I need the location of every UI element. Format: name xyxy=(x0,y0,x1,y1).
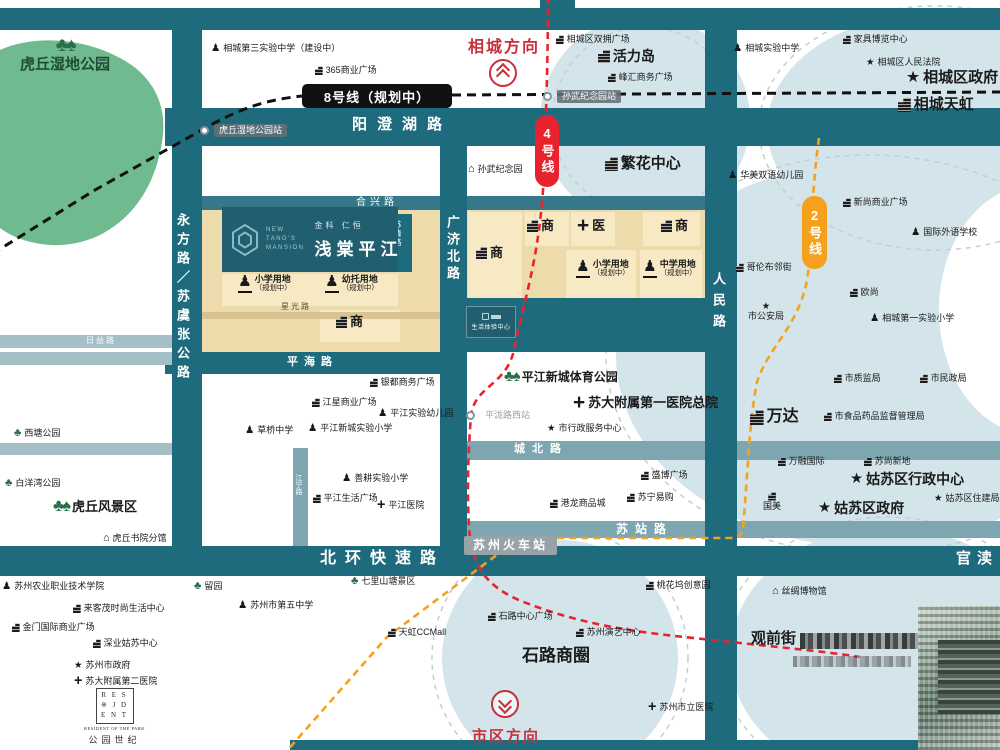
map-poi: 丝绸博物馆 xyxy=(772,586,827,597)
location-map: 阳澄湖路 合兴路 星光路 日益路 平海路 城北路 苏站路 北环快速路 官渎 永方… xyxy=(0,0,1000,750)
project-en-line: MANSION xyxy=(266,244,305,253)
trees-icon xyxy=(53,498,69,515)
poi-label: 商 xyxy=(490,246,503,260)
poi-label: 国美 xyxy=(763,502,781,511)
tree-icon xyxy=(194,581,201,592)
map-poi: 苏大附属第一医院总院 xyxy=(573,396,718,410)
poi-label: 苏州农业职业技术学院 xyxy=(14,582,104,591)
poi-label: 港龙商品城 xyxy=(561,499,606,508)
map-poi: 哥伦布邻街 xyxy=(736,263,792,272)
map-poi: 平江医院 xyxy=(377,501,424,510)
school-icon xyxy=(238,601,247,611)
poi-label: 姑苏区住建局 xyxy=(945,494,999,503)
map-poi: 相城天虹 xyxy=(898,97,974,113)
map-poi: 相城区人民法院 xyxy=(866,58,940,67)
building-icon xyxy=(824,412,832,421)
poi-label: 新尚商业广场 xyxy=(854,198,908,207)
building-icon xyxy=(768,492,776,501)
map-poi: 市质监局 xyxy=(834,374,881,383)
poi-label: 万达 xyxy=(767,409,799,426)
star-icon xyxy=(818,501,831,516)
poi-label: 草桥中学 xyxy=(257,426,293,435)
map-poi: 平江实验幼儿园 xyxy=(378,409,453,419)
museum-icon xyxy=(468,164,475,175)
star-icon xyxy=(906,70,920,86)
project-brands: 金科 仁恒 xyxy=(315,220,403,231)
map-poi: 苏州市政府 xyxy=(74,661,130,670)
poi-label: 相城第三实验中学（建设中） xyxy=(223,44,340,53)
poi-label: 苏州市政府 xyxy=(85,661,130,670)
cross-icon xyxy=(377,501,385,510)
poi-label: 相城天虹 xyxy=(914,97,974,113)
poi-label: 苏州演艺中心 xyxy=(587,628,641,637)
map-poi: 幼托用地（规划中） xyxy=(325,274,379,293)
tree-icon xyxy=(14,428,21,439)
poi-sublabel: （规划中） xyxy=(255,284,292,292)
map-poi: 国美 xyxy=(763,492,781,511)
poi-label: 相城第一实验小学 xyxy=(882,314,954,323)
map-poi: 孙武纪念园 xyxy=(468,164,523,175)
poi-label: 虎丘风景区 xyxy=(72,500,137,514)
map-poi: 苏州市立医院 xyxy=(648,703,713,712)
map-poi: 草桥中学 xyxy=(245,426,293,436)
person-icon xyxy=(643,259,657,277)
museum-icon xyxy=(103,533,110,544)
poi-label: 市食品药品监督管理局 xyxy=(835,412,925,421)
map-poi: 桃花坞创意园 xyxy=(646,581,711,590)
map-poi: 小学用地（规划中） xyxy=(576,259,630,278)
poi-label: 盛博广场 xyxy=(652,471,688,480)
cross-icon xyxy=(74,677,82,686)
building-icon xyxy=(834,374,842,383)
school-icon xyxy=(733,44,742,54)
star-icon xyxy=(74,661,82,670)
school-icon xyxy=(728,171,737,181)
map-poi: 市民政局 xyxy=(920,374,967,383)
poi-label: 欧尚 xyxy=(861,288,879,297)
poi-label: 孙武纪念园 xyxy=(478,165,523,174)
map-poi: 国际外语学校 xyxy=(911,228,977,238)
map-poi: 欧尚 xyxy=(850,288,879,297)
map-poi: 商 xyxy=(661,219,688,233)
poi-label: 苏宁易购 xyxy=(638,493,674,502)
resident-park-logo: R E S ※ J D E N T RESIDENT OF THE PARK 公… xyxy=(84,688,145,746)
poi-label: 哥伦布邻街 xyxy=(747,263,792,272)
project-en-line: TANG'S xyxy=(266,235,305,244)
map-poi: 中学用地（规划中） xyxy=(643,259,697,278)
map-poi: 平江新城实验小学 xyxy=(308,424,392,434)
poi-label: 商 xyxy=(675,219,688,233)
map-poi: 市行政服务中心 xyxy=(547,424,621,433)
map-poi: 商 xyxy=(476,246,503,260)
map-poi: 七里山塘景区 xyxy=(351,576,415,587)
building-icon xyxy=(661,220,672,232)
building-icon xyxy=(313,494,321,503)
map-poi: 医 xyxy=(577,219,605,233)
map-poi: 市公安局 xyxy=(748,302,784,322)
metro-line4-path xyxy=(468,0,860,657)
map-poi: 峰汇商务广场 xyxy=(608,73,673,82)
poi-label: 善耕实验小学 xyxy=(354,474,408,483)
metro-line8-badge: 8号线（规划中） xyxy=(302,84,452,108)
project-card: NEW TANG'S MANSION 金科 仁恒 浅棠平江 xyxy=(222,207,398,272)
poi-label: 苏州市立医院 xyxy=(659,703,713,712)
poi-label: 市公安局 xyxy=(748,312,784,321)
map-poi: 苏尚新地 xyxy=(864,457,911,466)
poi-label: 家具博览中心 xyxy=(854,35,908,44)
map-poi: 华美双语幼儿园 xyxy=(728,171,803,181)
poi-label: 市民政局 xyxy=(931,374,967,383)
building-icon xyxy=(605,157,618,171)
building-icon xyxy=(527,220,538,232)
poi-label: 万融国际 xyxy=(789,457,825,466)
map-poi: 盛博广场 xyxy=(641,471,688,480)
poi-label: 江星商业广场 xyxy=(323,398,377,407)
building-icon xyxy=(598,50,610,63)
poi-label: 桃花坞创意园 xyxy=(657,581,711,590)
project-en-line: NEW xyxy=(266,226,305,235)
map-poi: 石路商圈 xyxy=(522,647,590,665)
building-icon xyxy=(850,288,858,297)
museum-icon xyxy=(772,586,779,597)
building-icon xyxy=(608,73,616,82)
map-poi: 相城实验中学 xyxy=(733,44,799,54)
map-poi: 家具博览中心 xyxy=(843,35,908,44)
metro-station-dot xyxy=(543,92,552,101)
poi-label: 虎丘湿地公园 xyxy=(20,57,110,73)
poi-label: 来客茂时尚生活中心 xyxy=(84,604,165,613)
cross-icon xyxy=(573,396,585,410)
building-icon xyxy=(898,98,911,112)
poi-label: 活力岛 xyxy=(613,49,655,64)
poi-label: 医 xyxy=(592,219,605,233)
poi-sublabel: （规划中） xyxy=(593,269,630,277)
map-poi: 江星商业广场 xyxy=(312,398,377,407)
poi-label: 相城实验中学 xyxy=(745,44,799,53)
map-poi: 银都商务广场 xyxy=(370,378,435,387)
school-icon xyxy=(342,474,351,484)
building-icon xyxy=(12,623,20,632)
school-icon xyxy=(308,424,317,434)
project-name-en: NEW TANG'S MANSION xyxy=(266,226,305,253)
trees-icon xyxy=(504,369,519,385)
map-poi: 金门国际商业广场 xyxy=(12,623,95,632)
map-poi: 新尚商业广场 xyxy=(843,198,908,207)
building-icon xyxy=(315,66,323,75)
experience-center-box: 生活体验中心 xyxy=(466,306,516,338)
map-poi: 姑苏区住建局 xyxy=(934,494,999,503)
map-poi: 善耕实验小学 xyxy=(342,474,408,484)
map-poi: 虎丘湿地公园 xyxy=(20,36,110,72)
poi-label: 深业姑苏中心 xyxy=(104,639,158,648)
poi-label: 市质监局 xyxy=(845,374,881,383)
brand-mini-logos xyxy=(482,313,501,320)
building-icon xyxy=(864,457,872,466)
map-poi: 港龙商品城 xyxy=(550,499,606,508)
poi-label: 平江新城体育公园 xyxy=(522,371,618,384)
map-poi: 市食品药品监督管理局 xyxy=(824,412,925,421)
poi-label: 白洋湾公园 xyxy=(15,479,60,488)
cross-icon xyxy=(577,219,589,233)
map-poi: 苏大附属第二医院 xyxy=(74,677,157,686)
poi-label: 西塘公园 xyxy=(24,429,60,438)
direction-north-icon xyxy=(489,59,517,87)
resident-logo-subtitle: RESIDENT OF THE PARK xyxy=(84,726,145,731)
map-poi: 商 xyxy=(336,315,363,329)
map-poi: 相城区双拥广场 xyxy=(556,35,630,44)
star-icon xyxy=(934,494,942,503)
corrupted-image-artifact xyxy=(918,606,1000,750)
person-icon xyxy=(238,274,252,292)
school-icon xyxy=(245,426,254,436)
direction-south-label: 市区方向 xyxy=(472,725,540,746)
person-icon xyxy=(325,274,339,292)
map-poi: 来客茂时尚生活中心 xyxy=(73,604,165,613)
building-icon xyxy=(750,410,764,425)
poi-label: 平江生活广场 xyxy=(324,494,378,503)
metro-station-label: 平泷路西站 xyxy=(480,409,535,422)
star-icon xyxy=(850,472,863,487)
building-icon xyxy=(627,493,635,502)
corrupted-text-smudge xyxy=(793,656,911,667)
building-icon xyxy=(843,198,851,207)
school-icon xyxy=(870,314,879,324)
poi-label: 石路中心广场 xyxy=(499,612,553,621)
poi-label: 观前街 xyxy=(751,631,796,647)
direction-north-label: 相城方向 xyxy=(468,33,540,57)
map-poi: 365商业广场 xyxy=(315,66,377,75)
poi-label: 苏州市第五中学 xyxy=(250,601,313,610)
building-icon xyxy=(73,604,81,613)
poi-label: 商 xyxy=(541,219,554,233)
poi-label: 国际外语学校 xyxy=(923,228,977,237)
person-icon xyxy=(576,259,590,277)
map-poi: 白洋湾公园 xyxy=(5,478,60,489)
map-poi: 苏宁易购 xyxy=(627,493,674,502)
poi-sublabel: （规划中） xyxy=(342,284,379,292)
poi-label: 七里山塘景区 xyxy=(361,577,415,586)
map-poi: 观前街 xyxy=(751,631,796,647)
map-poi: 相城第三实验中学（建设中） xyxy=(211,44,340,54)
poi-label: 金门国际商业广场 xyxy=(23,623,95,632)
metro-station-label: 虎丘湿地公园站 xyxy=(214,124,287,137)
experience-center-label: 生活体验中心 xyxy=(471,322,510,331)
building-icon xyxy=(556,35,564,44)
resident-logo-grid: R E S ※ J D E N T xyxy=(96,688,134,724)
map-poi: 姑苏区政府 xyxy=(818,501,904,516)
metro-station-dot xyxy=(200,126,209,135)
building-icon xyxy=(312,398,320,407)
building-icon xyxy=(93,639,101,648)
poi-label: 石路商圈 xyxy=(522,647,590,665)
trees-icon xyxy=(56,36,74,56)
poi-label: 365商业广场 xyxy=(326,66,377,75)
map-poi: 天虹CCMall xyxy=(388,628,446,637)
poi-label: 繁花中心 xyxy=(621,156,681,172)
star-icon xyxy=(547,424,555,433)
poi-label: 相城区政府 xyxy=(923,70,998,86)
building-icon xyxy=(646,581,654,590)
poi-label: 华美双语幼儿园 xyxy=(740,171,803,180)
poi-label: 姑苏区行政中心 xyxy=(866,472,964,487)
poi-label: 平江新城实验小学 xyxy=(320,424,392,433)
school-icon xyxy=(911,228,920,238)
poi-sublabel: （规划中） xyxy=(660,269,697,277)
resident-logo-row: E N T xyxy=(101,711,128,721)
school-icon xyxy=(2,582,11,592)
map-poi: 相城区政府 xyxy=(906,70,998,86)
poi-label: 苏大附属第一医院总院 xyxy=(588,396,718,410)
metro-station-dot xyxy=(466,411,475,420)
project-logo-icon xyxy=(230,222,260,258)
building-icon xyxy=(388,628,396,637)
resident-logo-row: R E S xyxy=(101,691,127,701)
map-poi: 万融国际 xyxy=(778,457,825,466)
building-icon xyxy=(778,457,786,466)
map-poi: 石路中心广场 xyxy=(488,612,553,621)
metro-station-label: 孙武纪念园站 xyxy=(557,90,621,103)
cross-icon xyxy=(648,703,656,712)
poi-label: 姑苏区政府 xyxy=(834,501,904,516)
poi-label: 平江实验幼儿园 xyxy=(390,409,453,418)
map-poi: 苏州演艺中心 xyxy=(576,628,641,637)
metro-line2-badge: 2号线 xyxy=(802,196,827,269)
project-name: 浅棠平江 xyxy=(315,235,403,260)
resident-logo-cn: 公园世纪 xyxy=(89,733,141,746)
map-poi: 相城第一实验小学 xyxy=(870,314,954,324)
poi-label: 平江医院 xyxy=(388,501,424,510)
map-poi: 平江生活广场 xyxy=(313,494,378,503)
building-icon xyxy=(550,499,558,508)
map-poi: 苏州农业职业技术学院 xyxy=(2,582,104,592)
map-poi: 深业姑苏中心 xyxy=(93,639,158,648)
school-icon xyxy=(378,409,387,419)
building-icon xyxy=(920,374,928,383)
metro-station-label: 苏州火车站 xyxy=(464,536,557,555)
metro-line8-path-east xyxy=(452,92,1000,95)
map-poi: 繁花中心 xyxy=(605,156,681,172)
building-icon xyxy=(736,263,744,272)
map-poi: 小学用地（规划中） xyxy=(238,274,292,293)
poi-label: 苏大附属第二医院 xyxy=(85,677,157,686)
poi-label: 虎丘书院分馆 xyxy=(113,534,167,543)
star-icon xyxy=(866,58,874,67)
direction-south-icon xyxy=(491,690,519,718)
map-poi: 西塘公园 xyxy=(14,428,60,439)
poi-label: 市行政服务中心 xyxy=(558,424,621,433)
tree-icon xyxy=(351,576,358,587)
map-poi: 虎丘书院分馆 xyxy=(103,533,167,544)
poi-label: 天虹CCMall xyxy=(399,628,447,637)
map-poi: 留园 xyxy=(194,581,222,592)
map-poi: 虎丘风景区 xyxy=(53,498,137,515)
building-icon xyxy=(476,247,487,259)
poi-label: 银都商务广场 xyxy=(381,378,435,387)
poi-label: 留园 xyxy=(204,582,222,591)
map-poi: 万达 xyxy=(750,409,799,426)
school-icon xyxy=(211,44,220,54)
poi-label: 相城区双拥广场 xyxy=(567,35,630,44)
map-poi: 活力岛 xyxy=(598,49,655,64)
building-icon xyxy=(488,612,496,621)
metro-line4-badge: 4号线 xyxy=(535,115,559,187)
map-poi: 姑苏区行政中心 xyxy=(850,472,964,487)
poi-label: 相城区人民法院 xyxy=(877,58,940,67)
building-icon xyxy=(370,378,378,387)
tree-icon xyxy=(5,478,12,489)
resident-logo-row: ※ J D xyxy=(101,701,128,711)
poi-label: 商 xyxy=(350,315,363,329)
poi-label: 苏尚新地 xyxy=(875,457,911,466)
building-icon xyxy=(641,471,649,480)
poi-label: 丝绸博物馆 xyxy=(782,587,827,596)
building-icon xyxy=(843,35,851,44)
map-poi: 商 xyxy=(527,219,554,233)
poi-label: 峰汇商务广场 xyxy=(619,73,673,82)
map-poi: 苏州市第五中学 xyxy=(238,601,313,611)
map-poi: 平江新城体育公园 xyxy=(504,369,618,385)
building-icon xyxy=(576,628,584,637)
building-icon xyxy=(336,316,347,328)
